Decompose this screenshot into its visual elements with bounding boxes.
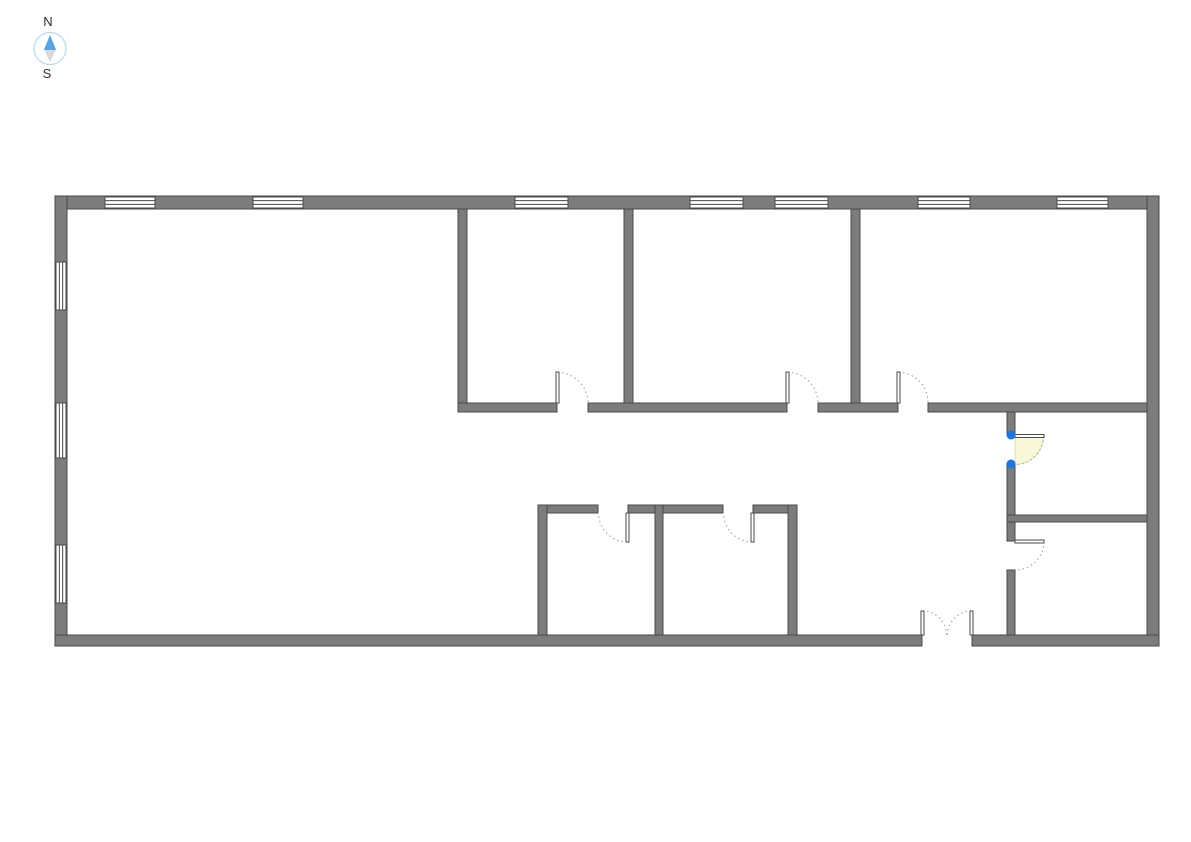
- window-west-3[interactable]: [56, 545, 66, 603]
- window-frame: [253, 197, 303, 208]
- wall-right-rooms-vertical-segment-3[interactable]: [1007, 570, 1015, 635]
- exterior-wall-east[interactable]: [1147, 196, 1159, 646]
- wall-corridor-segment-4[interactable]: [928, 403, 1147, 412]
- door-right-room-selected[interactable]: [1007, 431, 1045, 469]
- compass-north-label: N: [43, 14, 52, 29]
- wall-corridor-segment-2[interactable]: [588, 403, 787, 412]
- door-bottom-room-right[interactable]: [724, 513, 755, 542]
- wall-bottom-rooms-side-middle[interactable]: [655, 505, 663, 635]
- door-swing-arc: [948, 611, 972, 635]
- door-swing-area: [1015, 436, 1044, 465]
- wall-corridor-segment-3[interactable]: [818, 403, 898, 412]
- wall-right-rooms-vertical-segment-2[interactable]: [1007, 464, 1015, 541]
- double-door-south[interactable]: [921, 611, 973, 635]
- window-north-1[interactable]: [105, 197, 155, 208]
- door-right-room-lower[interactable]: [1015, 540, 1044, 570]
- window-north-7[interactable]: [1057, 197, 1108, 208]
- window-frame: [918, 197, 970, 208]
- window-north-6[interactable]: [918, 197, 970, 208]
- door-leaf: [1015, 540, 1044, 543]
- door-leaf: [626, 513, 629, 542]
- door-leaf: [921, 611, 924, 635]
- wall-bottom-rooms-side-left[interactable]: [538, 505, 547, 635]
- door-leaf: [897, 372, 900, 403]
- door-leaf: [786, 372, 789, 403]
- door-bottom-room-left[interactable]: [599, 513, 630, 542]
- door-swing-arc: [558, 373, 589, 404]
- door-swing-arc: [724, 513, 753, 542]
- selection-handle[interactable]: [1007, 460, 1016, 469]
- exterior-wall-north[interactable]: [55, 196, 1159, 209]
- window-frame: [56, 545, 66, 603]
- window-frame: [56, 262, 66, 310]
- wall-bottom-rooms-side-right[interactable]: [788, 505, 797, 635]
- window-north-2[interactable]: [253, 197, 303, 208]
- door-leaf: [970, 611, 973, 635]
- window-west-2[interactable]: [56, 403, 66, 458]
- door-swing-arc: [1016, 542, 1045, 571]
- wall-right-rooms-horizontal[interactable]: [1007, 515, 1147, 522]
- wall-top-rooms-divider-3[interactable]: [851, 209, 860, 403]
- window-north-3[interactable]: [515, 197, 568, 208]
- wall-bottom-rooms-top-segment-2[interactable]: [628, 505, 723, 513]
- wall-corridor-segment-1[interactable]: [458, 403, 557, 412]
- compass-south-label: S: [43, 66, 52, 81]
- plan-objects-layer: [55, 196, 1159, 646]
- window-frame: [690, 197, 743, 208]
- selection-handle[interactable]: [1007, 431, 1016, 440]
- door-leaf: [1015, 435, 1044, 438]
- window-frame: [775, 197, 828, 208]
- window-north-5[interactable]: [775, 197, 828, 208]
- floor-plan-canvas: N S: [0, 0, 1191, 842]
- window-north-4[interactable]: [690, 197, 743, 208]
- compass-icon: N S: [34, 14, 66, 81]
- door-top-room-3[interactable]: [897, 372, 928, 403]
- door-swing-arc: [899, 373, 929, 404]
- door-swing-arc: [599, 513, 628, 542]
- door-top-room-1[interactable]: [556, 372, 588, 403]
- window-frame: [515, 197, 568, 208]
- door-leaf: [751, 513, 754, 542]
- exterior-wall-south-west-segment[interactable]: [55, 635, 922, 646]
- door-swing-arc: [788, 373, 819, 404]
- door-leaf: [556, 372, 559, 403]
- floor-plan: N S: [0, 0, 1191, 842]
- window-frame: [56, 403, 66, 458]
- exterior-wall-south-east-segment[interactable]: [972, 635, 1159, 646]
- window-frame: [105, 197, 155, 208]
- door-top-room-2[interactable]: [786, 372, 818, 403]
- wall-top-rooms-divider-2[interactable]: [624, 209, 633, 403]
- door-swing-arc: [923, 611, 947, 635]
- window-west-1[interactable]: [56, 262, 66, 310]
- window-frame: [1057, 197, 1108, 208]
- wall-top-rooms-divider-1[interactable]: [458, 209, 467, 403]
